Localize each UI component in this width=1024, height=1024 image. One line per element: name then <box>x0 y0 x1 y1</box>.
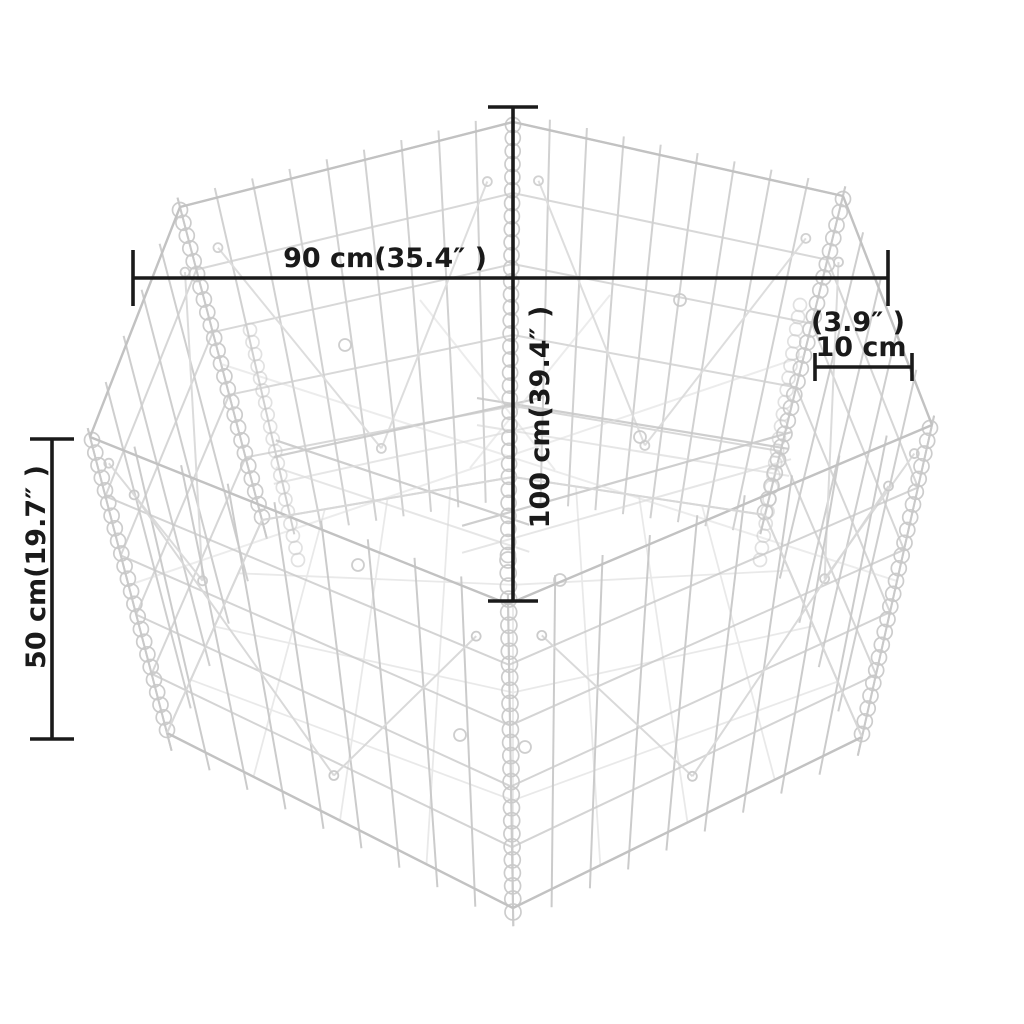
wire <box>368 539 400 867</box>
dimension-label-mesh-cell-10cm-1: 10 cm <box>815 332 906 363</box>
wire <box>666 515 697 850</box>
wire <box>568 128 587 506</box>
wire <box>185 272 203 581</box>
spiral-binder-coil <box>249 348 262 361</box>
wire <box>513 122 843 196</box>
spiral-binder-coil <box>788 335 801 348</box>
wire <box>628 535 650 869</box>
dimension-label-width-90cm: 90 cm(35.4″ ) <box>283 243 487 274</box>
dimension-annotations: 90 cm(35.4″ )100 cm(39.4″ )50 cm(19.7″ )… <box>21 107 912 739</box>
wire <box>180 122 513 207</box>
spiral-binder-coil <box>794 299 807 312</box>
wire <box>705 495 745 831</box>
wire <box>743 475 792 812</box>
spiral-binder-coil <box>757 529 770 542</box>
wire-hook <box>519 741 531 753</box>
wire <box>262 477 513 520</box>
wire <box>781 456 839 794</box>
wire <box>90 207 180 437</box>
wire <box>509 487 918 664</box>
wire <box>650 153 697 518</box>
wire <box>623 145 661 515</box>
wire <box>364 150 404 517</box>
wire <box>513 193 827 260</box>
spiral-binder-coil <box>246 336 259 349</box>
wire-hook <box>454 729 466 741</box>
wire <box>152 457 246 673</box>
wire <box>552 575 556 907</box>
wire <box>401 140 431 512</box>
product-diagram: 90 cm(35.4″ )100 cm(39.4″ )50 cm(19.7″ )… <box>0 0 1024 1024</box>
wire <box>838 370 916 712</box>
wire <box>274 502 323 829</box>
wire-hook <box>352 559 364 571</box>
wire-hook <box>339 339 351 351</box>
dimension-label-depth-100cm: 100 cm(39.4″ ) <box>525 306 556 529</box>
wire <box>827 260 918 488</box>
wire <box>439 131 459 508</box>
front-wall-panels <box>88 416 934 927</box>
wire <box>513 264 812 324</box>
spiral-binder-coil <box>292 554 305 567</box>
wire-hook <box>801 234 810 243</box>
spiral-binder-coil <box>778 396 791 409</box>
wire <box>152 674 512 847</box>
gabion-basket-wireframe: 90 cm(35.4″ )100 cm(39.4″ )50 cm(19.7″ )… <box>0 0 1024 1024</box>
wire <box>415 558 438 887</box>
spiral-binder-coil <box>790 323 803 336</box>
dimension-label-wall-height-50cm: 50 cm(19.7″ ) <box>21 465 52 669</box>
wire <box>595 136 623 510</box>
spiral-binder-coil <box>289 541 302 554</box>
wire <box>705 170 771 527</box>
wire <box>513 682 838 801</box>
wire-hook <box>213 243 222 252</box>
wire <box>461 576 475 906</box>
spiral-binder-coil <box>782 371 795 384</box>
spiral-binder-coil <box>244 324 257 337</box>
wire-hook <box>537 631 546 640</box>
spiral-binder-coil <box>755 541 768 554</box>
wire <box>167 733 513 908</box>
